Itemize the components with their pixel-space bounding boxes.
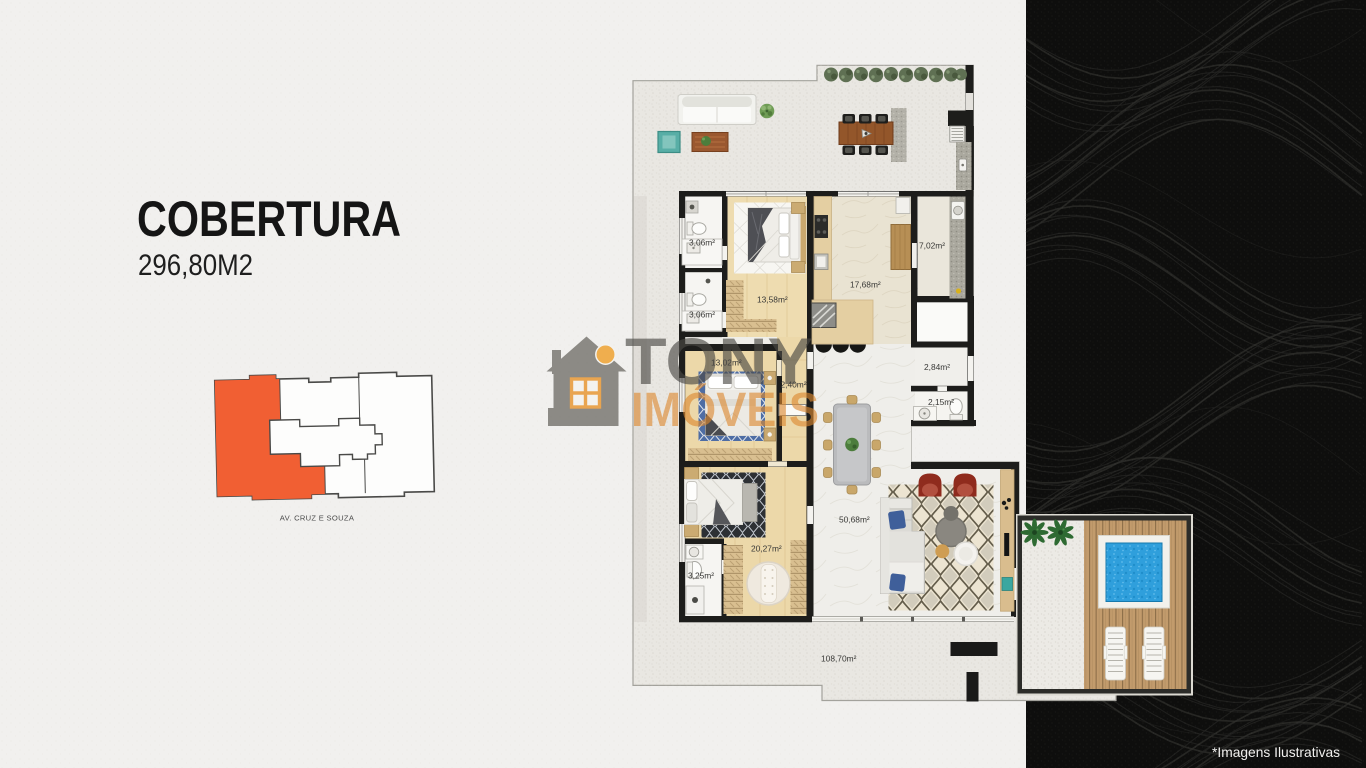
svg-text:3,06m²: 3,06m² [689,238,715,248]
svg-text:IMÓVEIS: IMÓVEIS [631,382,819,437]
svg-text:13,58m²: 13,58m² [757,295,788,305]
svg-text:296,80M2: 296,80M2 [138,249,253,282]
svg-text:50,68m²: 50,68m² [839,515,870,525]
svg-text:COBERTURA: COBERTURA [137,191,401,247]
svg-text:3,25m²: 3,25m² [688,571,714,581]
svg-text:3,06m²: 3,06m² [689,310,715,320]
svg-text:20,27m²: 20,27m² [751,544,782,554]
svg-text:2,15m²: 2,15m² [928,397,954,407]
svg-text:AV. CRUZ E SOUZA: AV. CRUZ E SOUZA [280,514,355,523]
svg-text:108,70m²: 108,70m² [821,654,857,664]
svg-text:17,68m²: 17,68m² [850,280,881,290]
svg-text:*Imagens Ilustrativas: *Imagens Ilustrativas [1212,745,1340,760]
svg-text:2,84m²: 2,84m² [924,362,950,372]
svg-text:7,02m²: 7,02m² [919,241,945,251]
